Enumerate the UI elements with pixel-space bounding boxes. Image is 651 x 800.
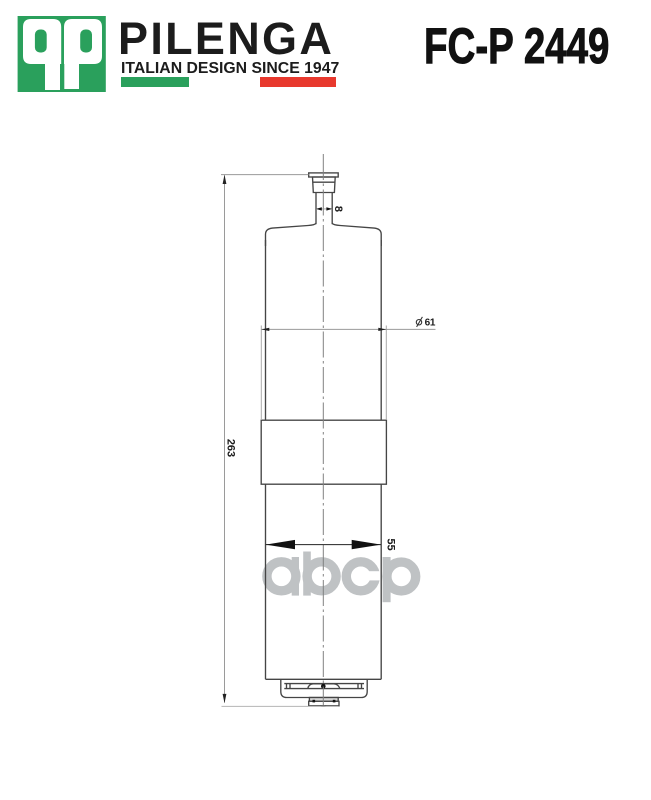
svg-text:55: 55 — [385, 538, 397, 550]
svg-text:8: 8 — [332, 206, 344, 212]
svg-text:263: 263 — [225, 439, 237, 457]
svg-text:61: 61 — [425, 318, 436, 329]
